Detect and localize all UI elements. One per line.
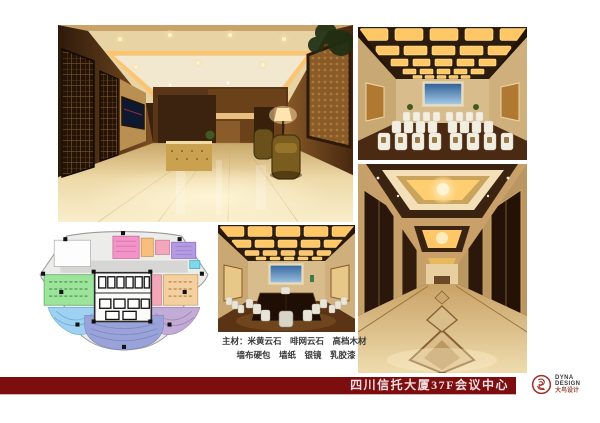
logo-text: DYNA DESIGN 大鸟设计 [555, 375, 580, 395]
conference-hall-art [358, 27, 527, 160]
project-title: 四川信托大厦37F会议中心 [350, 377, 516, 394]
elevator-corridor-art [358, 164, 527, 373]
meeting-room-art [218, 225, 355, 332]
wall-art-left [224, 265, 242, 301]
materials-line-2: 墙布硬包 墙纸 银镜 乳胶漆 [222, 348, 370, 362]
wall-art-right [331, 265, 349, 301]
elevator-corridor-render-image [358, 164, 527, 373]
presentation-board: 主材：米黄云石 啡网云石 高档木材 墙布硬包 墙纸 银镜 乳胶漆 四川信托大厦3… [0, 0, 600, 423]
plan-room-white [54, 240, 90, 266]
plan-room-green [44, 275, 95, 305]
materials-note: 主材：米黄云石 啡网云石 高档木材 墙布硬包 墙纸 银镜 乳胶漆 [222, 334, 370, 362]
display-screen [270, 265, 302, 283]
project-title-bar: 四川信托大厦37F会议中心 [0, 377, 516, 395]
lobby-render-image [58, 25, 353, 222]
floor-plan-image [36, 228, 212, 354]
dyna-design-logo: DYNA DESIGN 大鸟设计 [531, 374, 580, 395]
logo-line-2: DESIGN [555, 381, 580, 388]
logo-line-3: 大鸟设计 [555, 388, 580, 395]
projection-screen [424, 83, 462, 105]
meeting-room-render-image [218, 225, 355, 332]
plan-core [95, 273, 152, 322]
plan-room-pink-small [155, 240, 169, 254]
floor-plan-art [36, 228, 212, 354]
wall-art-right [501, 83, 519, 121]
plan-room-magenta [113, 236, 139, 258]
conference-hall-render-image [358, 27, 527, 160]
plan-room-cyan [190, 261, 200, 269]
plan-room-tan [163, 275, 197, 305]
materials-line-1: 主材：米黄云石 啡网云石 高档木材 [222, 334, 370, 348]
lobby-render-art [58, 25, 353, 222]
plan-room-orange [141, 238, 153, 256]
wall-art-left [366, 83, 384, 121]
plan-room-purple [172, 242, 196, 258]
bird-emblem-icon [531, 374, 552, 395]
